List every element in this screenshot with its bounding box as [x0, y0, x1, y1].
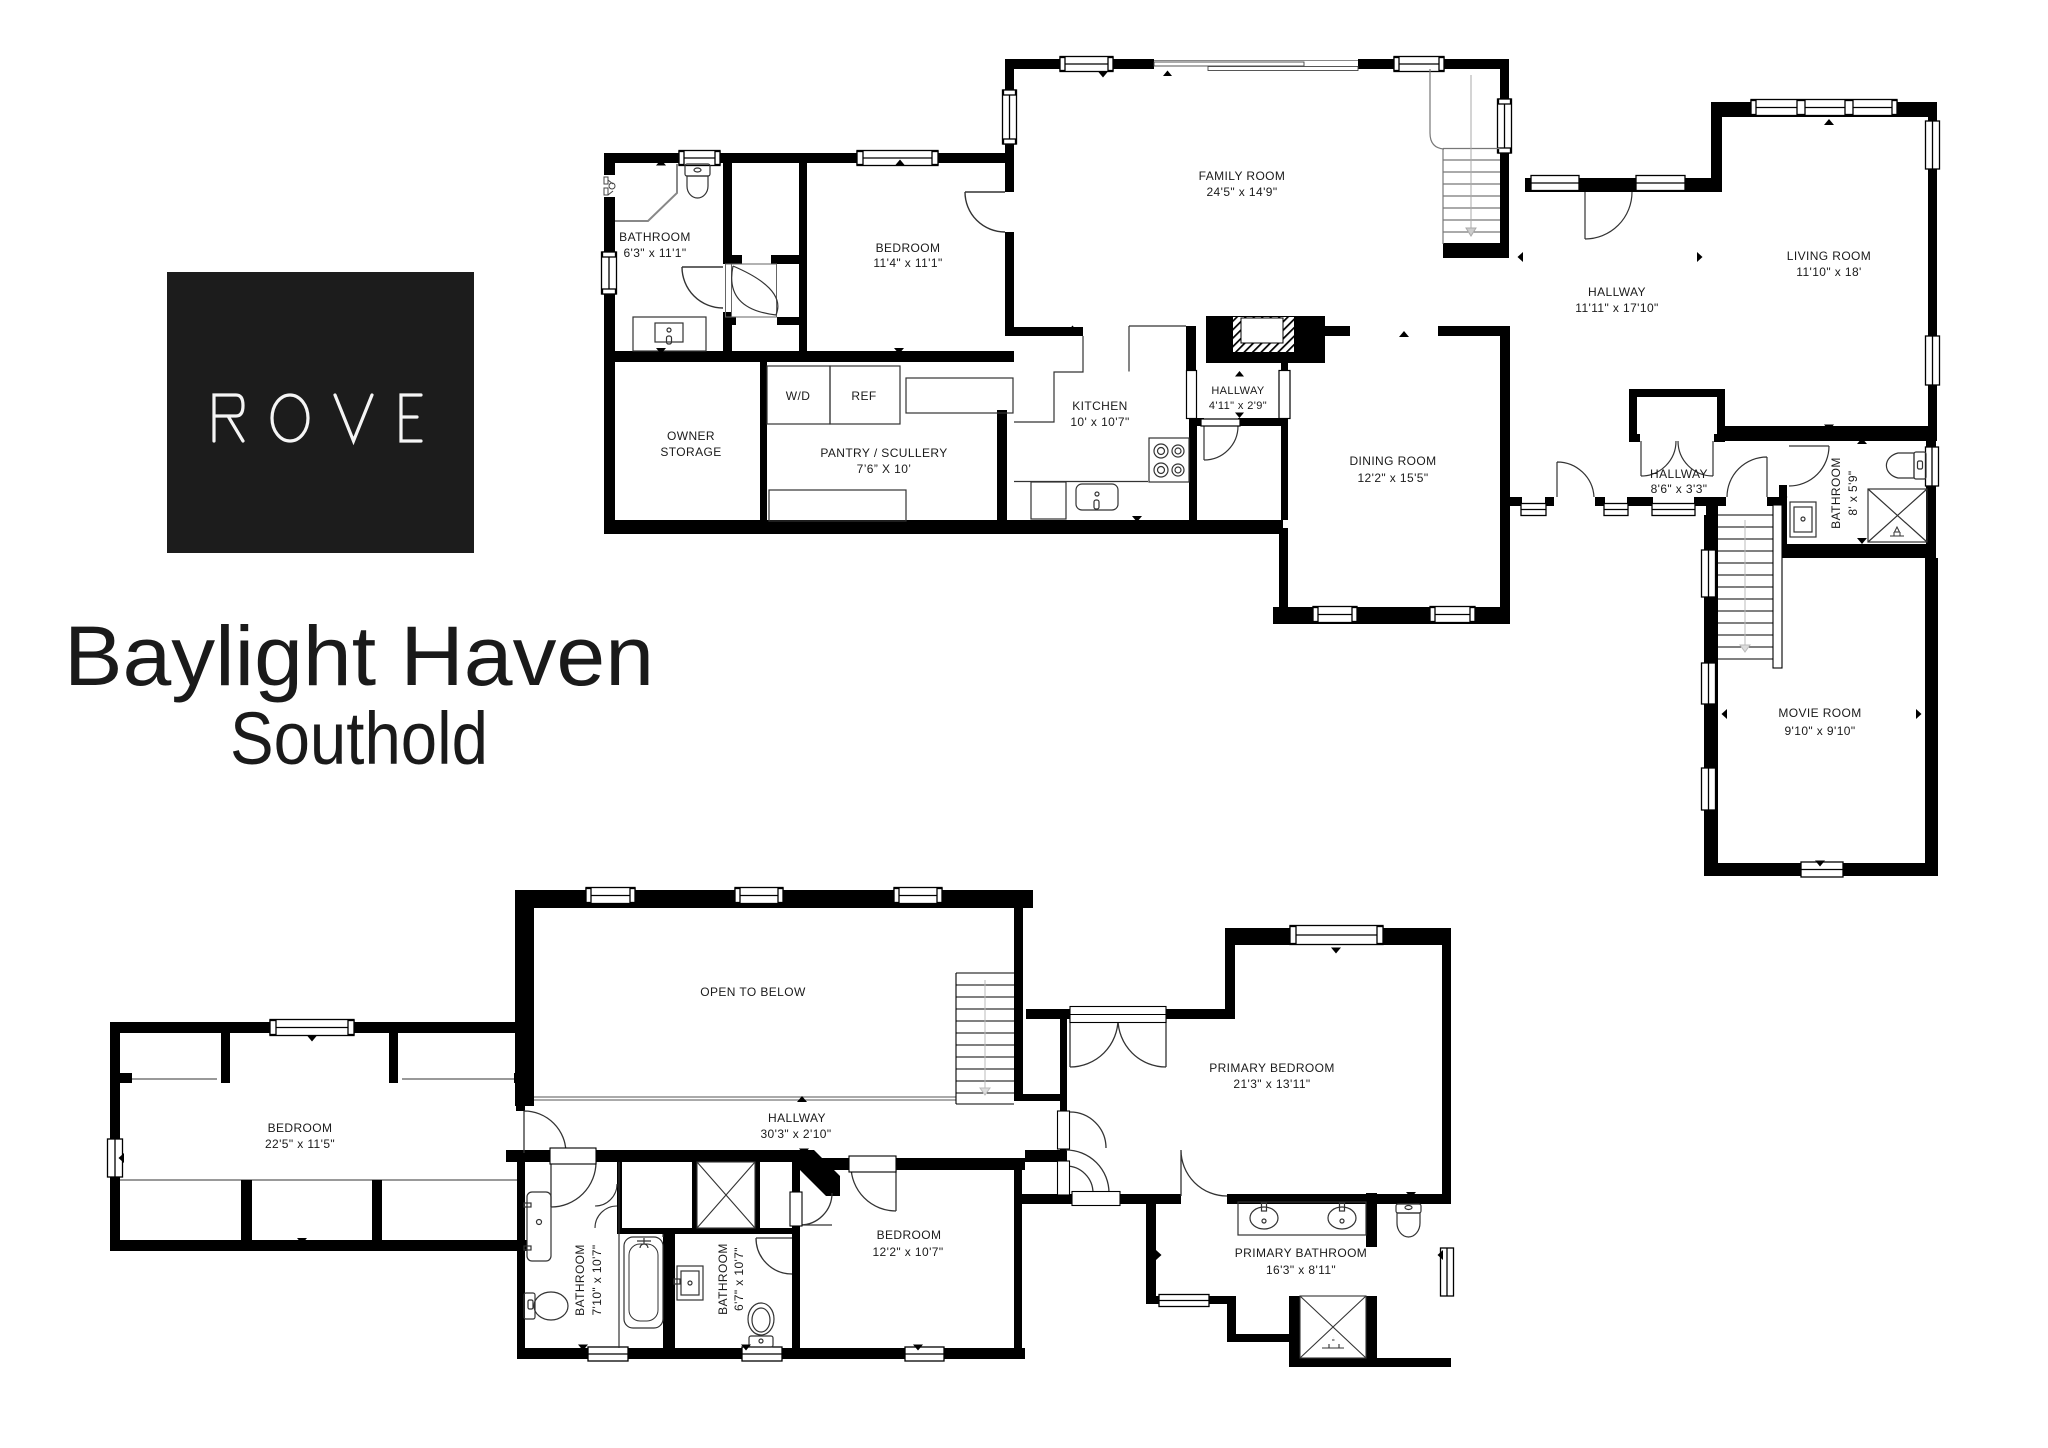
svg-text:24'5" x 14'9": 24'5" x 14'9" [1206, 185, 1277, 199]
svg-text:STORAGE: STORAGE [660, 445, 721, 459]
svg-text:4'11" x 2'9": 4'11" x 2'9" [1209, 400, 1267, 412]
svg-text:DINING ROOM: DINING ROOM [1349, 454, 1436, 468]
svg-text:7’6” X 10’: 7’6” X 10’ [857, 462, 912, 476]
svg-text:BATHROOM: BATHROOM [619, 230, 691, 244]
svg-text:KITCHEN: KITCHEN [1072, 399, 1127, 413]
svg-text:PANTRY / SCULLERY: PANTRY / SCULLERY [820, 446, 947, 460]
svg-text:9'10" x 9'10": 9'10" x 9'10" [1784, 724, 1855, 738]
svg-text:BATHROOM: BATHROOM [716, 1243, 730, 1315]
svg-text:Southold: Southold [230, 697, 488, 780]
svg-text:HALLWAY: HALLWAY [1211, 385, 1265, 397]
svg-text:OPEN TO BELOW: OPEN TO BELOW [700, 985, 806, 999]
svg-text:FAMILY ROOM: FAMILY ROOM [1199, 169, 1286, 183]
svg-text:Baylight Haven: Baylight Haven [64, 609, 654, 703]
svg-text:8' x 5'9": 8' x 5'9" [1846, 470, 1860, 515]
svg-text:OWNER: OWNER [667, 429, 715, 443]
svg-text:16'3" x 8'11": 16'3" x 8'11" [1266, 1263, 1336, 1277]
svg-text:LIVING ROOM: LIVING ROOM [1787, 249, 1871, 263]
svg-text:BATHROOM: BATHROOM [1829, 457, 1843, 529]
svg-text:11'11" x 17'10": 11'11" x 17'10" [1575, 301, 1658, 315]
svg-text:6'3" x 11'1": 6'3" x 11'1" [623, 246, 686, 260]
svg-text:30'3" x 2'10": 30'3" x 2'10" [760, 1127, 831, 1141]
svg-text:W/D: W/D [786, 389, 811, 403]
svg-text:HALLWAY: HALLWAY [768, 1111, 826, 1125]
svg-text:HALLWAY: HALLWAY [1650, 467, 1708, 481]
svg-text:21'3" x 13'11": 21'3" x 13'11" [1233, 1077, 1310, 1091]
svg-text:PRIMARY BEDROOM: PRIMARY BEDROOM [1209, 1061, 1335, 1075]
svg-text:BEDROOM: BEDROOM [268, 1121, 333, 1135]
svg-text:12'2" x 10'7": 12'2" x 10'7" [872, 1245, 943, 1259]
svg-text:6'7" x 10'7": 6'7" x 10'7" [732, 1247, 746, 1311]
svg-text:12'2" x 15'5": 12'2" x 15'5" [1357, 471, 1428, 485]
svg-text:8'6" x 3'3": 8'6" x 3'3" [1651, 482, 1708, 496]
svg-text:REF: REF [851, 389, 876, 403]
svg-text:BEDROOM: BEDROOM [876, 241, 941, 255]
svg-text:11'4" x 11'1": 11'4" x 11'1" [873, 256, 942, 270]
svg-text:BEDROOM: BEDROOM [877, 1228, 942, 1242]
svg-text:HALLWAY: HALLWAY [1588, 285, 1646, 299]
svg-text:11'10" x 18': 11'10" x 18' [1796, 265, 1861, 279]
svg-text:MOVIE ROOM: MOVIE ROOM [1778, 706, 1861, 720]
svg-text:PRIMARY BATHROOM: PRIMARY BATHROOM [1235, 1246, 1367, 1260]
svg-text:22'5" x 11'5": 22'5" x 11'5" [265, 1137, 335, 1151]
svg-text:10' x 10'7": 10' x 10'7" [1070, 415, 1129, 429]
svg-text:BATHROOM: BATHROOM [573, 1244, 587, 1316]
svg-text:7'10" x 10'7": 7'10" x 10'7" [590, 1244, 604, 1315]
